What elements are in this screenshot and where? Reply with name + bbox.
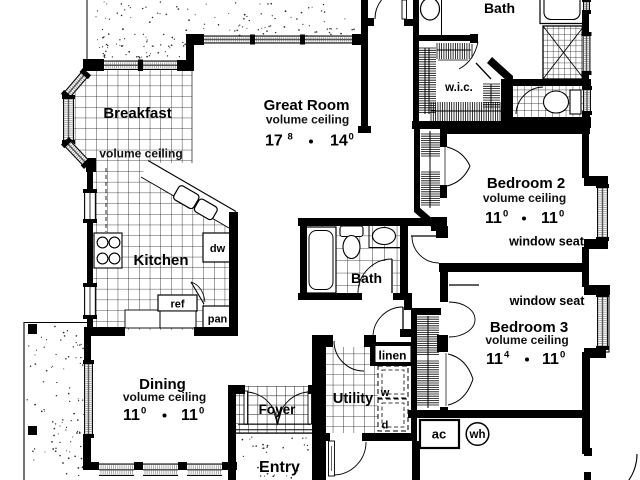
svg-text:volume ceiling: volume ceiling	[99, 147, 182, 161]
svg-text:w: w	[380, 387, 390, 399]
svg-text:Bedroom 2: Bedroom 2	[487, 175, 565, 192]
svg-text:pan: pan	[208, 314, 228, 326]
svg-text:0: 0	[141, 406, 146, 417]
svg-text:Bath: Bath	[484, 0, 515, 16]
svg-text:Bath: Bath	[351, 270, 382, 286]
svg-text:4: 4	[504, 350, 510, 361]
svg-text:0: 0	[559, 209, 564, 220]
svg-text:dw: dw	[210, 243, 226, 255]
svg-text:11: 11	[123, 407, 140, 424]
svg-text:Entry: Entry	[259, 459, 300, 476]
svg-text:17: 17	[265, 133, 283, 150]
svg-text:Foyer: Foyer	[259, 402, 297, 417]
svg-text:volume ceiling: volume ceiling	[485, 333, 568, 347]
svg-text:11: 11	[542, 351, 559, 368]
svg-text:0: 0	[503, 209, 508, 220]
svg-text:Great Room: Great Room	[264, 97, 350, 114]
svg-text:volume ceiling: volume ceiling	[483, 191, 566, 205]
svg-text:11: 11	[541, 210, 558, 227]
svg-text:0: 0	[560, 350, 565, 361]
svg-text:0: 0	[199, 406, 204, 417]
svg-text:14: 14	[330, 133, 348, 150]
svg-text:Kitchen: Kitchen	[133, 252, 188, 269]
svg-text:linen: linen	[378, 349, 406, 363]
svg-text:8: 8	[288, 132, 293, 143]
svg-text:11: 11	[181, 407, 198, 424]
svg-text:window seat: window seat	[508, 235, 585, 249]
svg-text:11: 11	[486, 351, 503, 368]
svg-text:0: 0	[349, 132, 354, 143]
svg-text:volume ceiling: volume ceiling	[266, 113, 349, 127]
svg-text:window seat: window seat	[509, 294, 586, 308]
svg-text:11: 11	[485, 210, 502, 227]
svg-text:Utility: Utility	[333, 391, 373, 407]
svg-text:ref: ref	[170, 299, 184, 311]
svg-text:volume ceiling: volume ceiling	[123, 390, 206, 404]
svg-text:wh: wh	[469, 429, 486, 441]
svg-text:ac: ac	[432, 427, 446, 442]
svg-text:Breakfast: Breakfast	[103, 105, 171, 122]
svg-text:d: d	[382, 420, 389, 432]
svg-text:w.i.c.: w.i.c.	[444, 82, 473, 94]
